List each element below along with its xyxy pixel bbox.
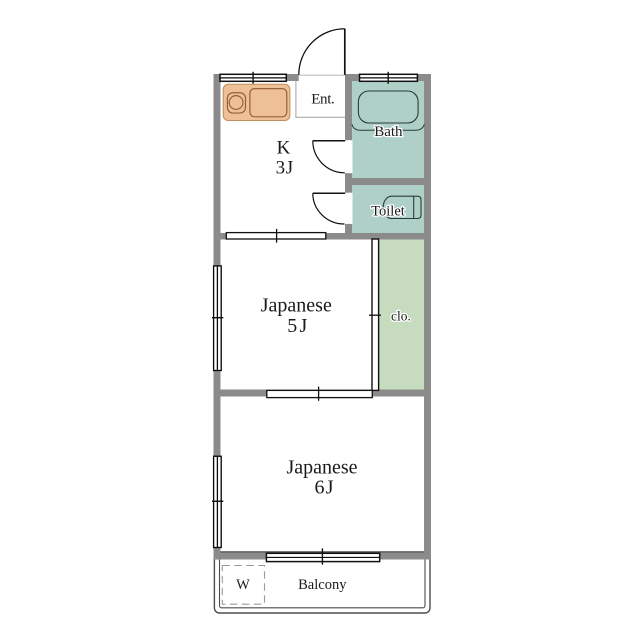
svg-text:clo.: clo. (391, 308, 411, 323)
svg-text:6J: 6J (315, 476, 334, 498)
svg-text:Ent.: Ent. (311, 92, 335, 108)
svg-text:Balcony: Balcony (298, 577, 347, 593)
svg-text:Japanese: Japanese (286, 457, 357, 479)
svg-text:3J: 3J (276, 158, 294, 179)
svg-text:K: K (277, 138, 291, 159)
svg-text:Japanese: Japanese (261, 295, 332, 317)
svg-text:Toilet: Toilet (371, 203, 405, 219)
svg-text:W: W (236, 577, 250, 593)
svg-text:Bath: Bath (374, 124, 403, 140)
